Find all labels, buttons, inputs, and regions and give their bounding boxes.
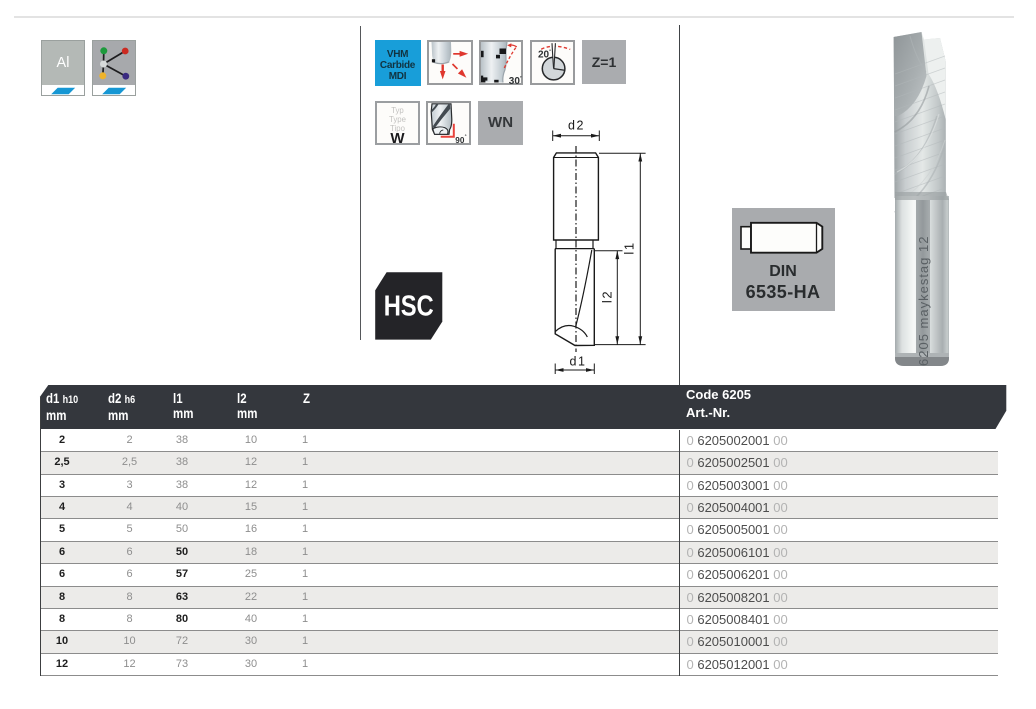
svg-text:l1: l1 [622,241,637,254]
svg-text:30˚: 30˚ [508,75,521,87]
svg-text:l2: l2 [600,290,615,303]
svg-text:HSC: HSC [384,289,434,322]
svg-text:˚: ˚ [465,134,467,141]
svg-text:d1: d1 [570,355,587,369]
svg-text:90: 90 [455,136,465,145]
svg-text:6205 maykestag 12: 6205 maykestag 12 [916,236,931,366]
svg-text:d2: d2 [568,119,585,133]
